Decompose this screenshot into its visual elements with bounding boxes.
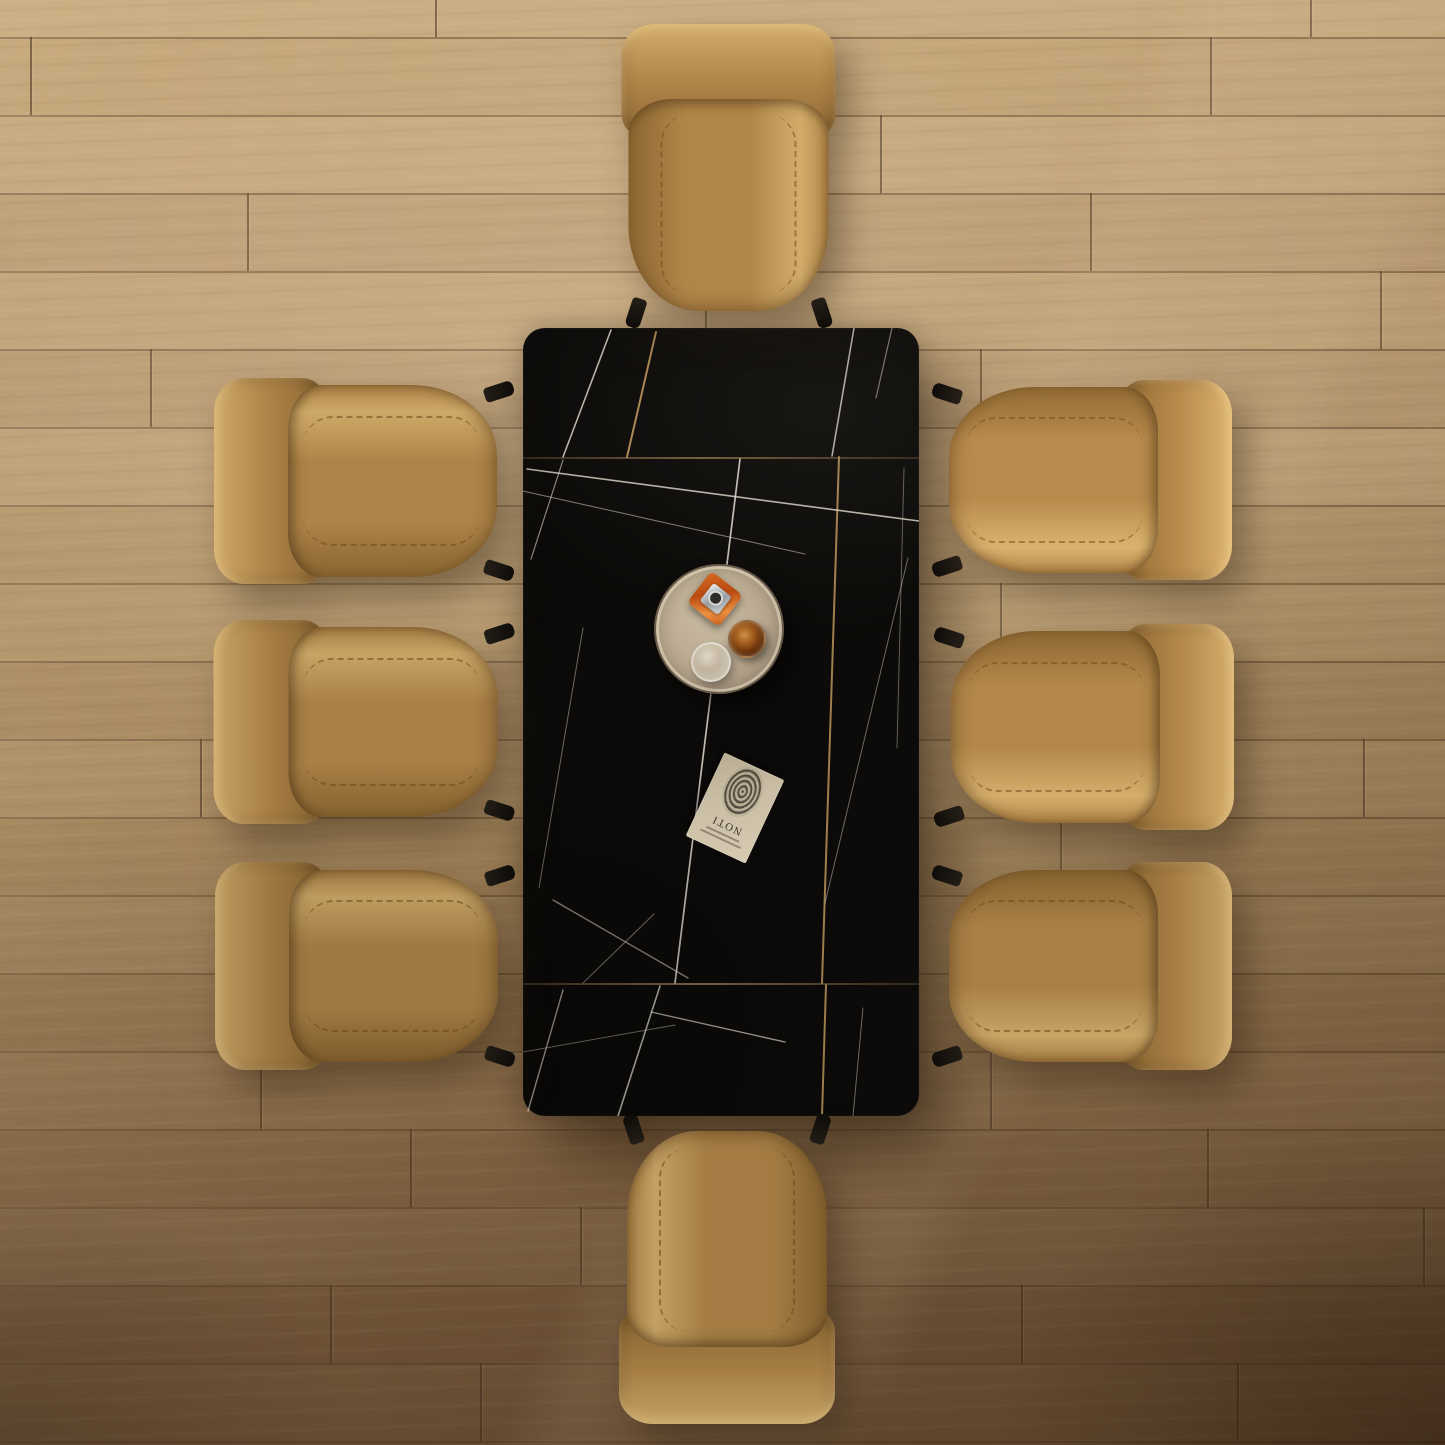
amber-glass [728, 620, 766, 658]
top-down-dining-set-scene: NOTI [0, 0, 1445, 1445]
plank-seam [30, 37, 32, 115]
chair-body [213, 618, 500, 826]
perfume-bottle [687, 571, 743, 627]
plank-seam [1380, 271, 1382, 349]
chair-seat [289, 870, 498, 1063]
chair-seat-stitching [659, 1148, 795, 1332]
round-serving-tray [654, 564, 784, 694]
plank-seam [410, 1129, 412, 1207]
plank-seam [480, 1363, 482, 1441]
plank-seam [1207, 1129, 1209, 1207]
chair-body [617, 1128, 837, 1424]
plank-seam [435, 0, 437, 37]
chair-seat-stitching [302, 658, 480, 787]
plank-seam [1210, 37, 1212, 115]
plank-seam [200, 739, 202, 817]
plank-seam [1021, 1285, 1023, 1363]
chair-east-2 [948, 622, 1234, 832]
chair-body [946, 860, 1232, 1072]
table-light-tint [523, 328, 919, 1116]
chair-body [215, 860, 501, 1072]
plank-seam [1310, 0, 1312, 37]
chair-seat-stitching [966, 417, 1143, 543]
black-marble-dining-table [523, 328, 919, 1116]
chair-seat [951, 631, 1160, 822]
chair-seat [949, 870, 1158, 1063]
chair-seat-stitching [304, 900, 481, 1031]
plank-seam [580, 1207, 582, 1285]
chair-seat [629, 99, 828, 311]
chair-south [617, 1128, 837, 1424]
chair-seat-stitching [968, 662, 1145, 792]
plank-seam [1423, 1207, 1425, 1285]
table-leaf-seam [523, 457, 919, 459]
chair-body [619, 24, 838, 314]
plank-seam [1363, 739, 1365, 817]
chair-seat-stitching [966, 900, 1143, 1031]
plank-seam [150, 349, 152, 427]
plank-seam [330, 1285, 332, 1363]
chair-seat [949, 387, 1158, 573]
chair-west-1 [214, 376, 500, 586]
plank-seam [1090, 193, 1092, 271]
chair-seat [288, 385, 497, 576]
chair-seat [288, 627, 498, 816]
chair-east-1 [946, 378, 1232, 582]
chair-west-3 [215, 860, 501, 1072]
chair-body [946, 378, 1232, 582]
chair-body [214, 376, 500, 586]
chair-seat-stitching [661, 114, 797, 294]
plank-seam [1237, 1363, 1239, 1441]
floor-plank [0, 1441, 1445, 1445]
chair-east-3 [946, 860, 1232, 1072]
plank-seam [247, 193, 249, 271]
fingerprint-artwork [714, 760, 770, 823]
chair-seat-stitching [303, 416, 480, 546]
chair-west-2 [213, 618, 500, 826]
plank-seam [880, 115, 882, 193]
chair-north [619, 24, 838, 314]
table-leaf-seam [523, 983, 919, 985]
chair-body [948, 622, 1234, 832]
clear-glass [691, 642, 731, 682]
chair-seat [627, 1131, 827, 1347]
